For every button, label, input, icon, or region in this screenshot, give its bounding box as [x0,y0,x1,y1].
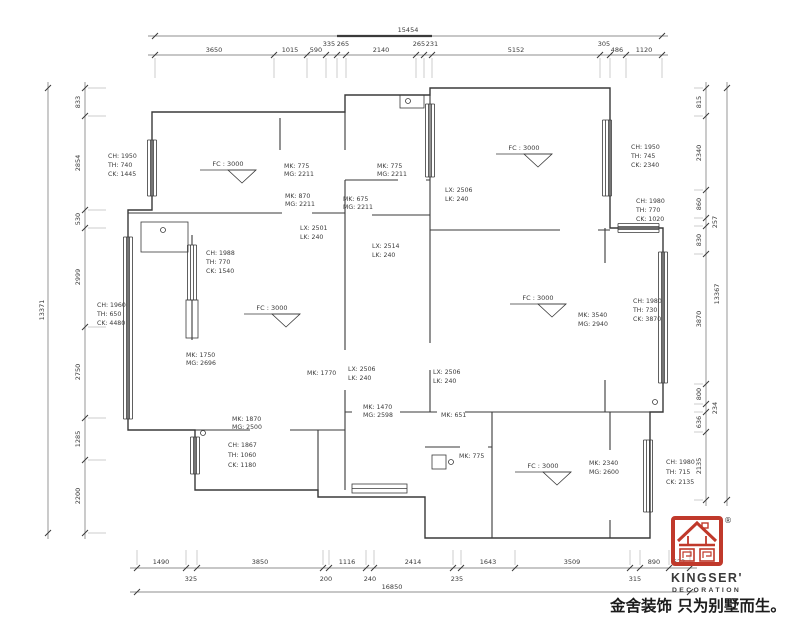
dim-label: 265 [413,40,425,48]
label-line: TH: 715 [665,469,690,476]
window-label-master-west: CH: 1960 TH: 650 CK: 4480 [96,302,126,327]
label-line: CH: 1980 [636,198,665,205]
duct-shaft [400,95,424,108]
dim-label: 636 [695,416,703,428]
label-line: CH: 1988 [206,250,235,257]
window-label-bedroom1-west: CH: 1950 TH: 740 CK: 1445 [107,153,137,178]
fc-label: FC : 3000 [508,144,539,152]
label-line: CK: 1540 [206,268,234,275]
fixture-knob-icon [653,400,658,405]
cabinet [141,222,188,252]
dim-label: 2414 [405,558,422,566]
dim-label: 335 [323,40,335,48]
door-label: MG: 2598 [363,412,393,419]
dim-label: 235 [451,575,463,583]
beam-label: LX: 2501 [300,225,328,232]
dim-label: 1120 [636,46,653,54]
dim-label: 3650 [206,46,223,54]
door-label: MG: 2211 [343,204,373,211]
dim-label: 1490 [153,558,170,566]
dim-label: 2200 [74,488,82,505]
label-line: CH: 1980 [633,298,662,305]
label-line: TH: 745 [630,153,655,160]
label-line: TH: 1060 [227,452,256,459]
label-line: CK: 4480 [97,320,125,327]
dim-label: 2750 [74,364,82,381]
window-label-living-east: CH: 1980 TH: 730 CK: 3870 [632,298,662,323]
beam-annotations: LX: 2501 LK: 240 LX: 2506 LK: 240 LX: 25… [300,187,473,385]
window-label-bedroom3-east: CH: 1980 TH: 715 CK: 2135 [665,459,695,486]
fc-marker-living: FC : 3000 [510,294,566,317]
label-line: CK: 1180 [228,462,256,469]
fc-marker-bedroom2: FC : 3000 [496,144,552,167]
door-label: MG: 2211 [377,171,407,178]
dim-label: 1285 [74,431,82,448]
registered-mark: ® [724,516,732,525]
beam-label: LX: 2506 [445,187,473,194]
label-line: CH: 1980 [666,459,695,466]
fixture-knob-icon [449,460,454,465]
dimension-ticks [45,33,730,595]
dim-label: 833 [74,96,82,108]
floor-plan-sheet: 15454 3650 1015 590 335 265 2140 265 231… [0,0,800,640]
door-label: MG: 2696 [186,360,216,367]
dim-label: 815 [695,96,703,108]
brand-subtitle: DECORATION [672,587,741,594]
dim-label: 231 [426,40,438,48]
dim-label: 486 [611,46,623,54]
window-label-bedroom2-east: CH: 1950 TH: 745 CK: 2340 [630,144,660,169]
brand-name: KINGSER' [671,571,743,585]
dim-label: 2854 [74,155,82,172]
door-label: MG: 2500 [232,424,262,431]
dim-label: 2340 [695,145,703,162]
window-bedroom3-east [644,440,653,512]
dim-label: 3850 [252,558,269,566]
window-label-bath-west: CH: 1867 TH: 1060 CK: 1180 [227,442,257,469]
door-label: MK: 775 [459,453,484,460]
label-line: CK: 1020 [636,216,664,223]
dim-label: 2135 [695,458,703,475]
fixtures [141,95,658,493]
dim-label: 325 [185,575,197,583]
door-label: MG: 2940 [578,321,608,328]
label-line: CK: 3870 [633,316,661,323]
label-line: TH: 740 [107,162,132,169]
door-label: MK: 775 [284,163,309,170]
dim-label: 305 [598,40,610,48]
dim-label: 860 [695,198,703,210]
dim-label: 5152 [508,46,525,54]
fc-label: FC : 3000 [522,294,553,302]
beam-label: LX: 2506 [348,366,376,373]
door-annotations: MK: 775 MG: 2211 MK: 775 MG: 2211 MK: 87… [186,163,619,476]
fc-marker-master: FC : 3000 [244,304,300,327]
dim-label: 1643 [480,558,497,566]
window-label-master-inner: CH: 1988 TH: 770 CK: 1540 [205,250,235,275]
window-label-bedroom2-south: CH: 1980 TH: 770 CK: 1020 [635,198,665,223]
dim-labels-bottom: 1490 3850 1116 2414 1643 3509 890 623 32… [153,558,685,591]
slogan: 金舍装饰 只为别墅而生。 [609,596,786,615]
dim-label: 200 [320,575,332,583]
beam-label: LK: 240 [348,375,371,382]
dim-label: 890 [648,558,660,566]
dim-label: 530 [74,213,82,225]
dim-left-overall: 13371 [38,300,46,321]
beam-label: LX: 2514 [372,243,400,250]
dim-labels-right: 815 2340 860 257 830 3870 800 234 636 21… [695,96,721,474]
door-label: MK: 675 [343,196,368,203]
door-label: MK: 2340 [589,460,618,467]
door-label: MK: 1770 [307,370,336,377]
wash-basin [432,455,446,469]
dim-label: 2999 [74,269,82,286]
floor-plan-drawing: 15454 3650 1015 590 335 265 2140 265 231… [0,0,800,640]
door-label: MK: 870 [285,193,310,200]
label-line: TH: 770 [635,207,660,214]
fixture-knob-icon [161,228,166,233]
dim-label: 2140 [373,46,390,54]
beam-label: LK: 240 [445,196,468,203]
dim-labels-top: 15454 3650 1015 590 335 265 2140 265 231… [206,26,653,54]
fixture-knob-icon [201,431,206,436]
door-label: MK: 1750 [186,352,215,359]
door-label: MK: 1870 [232,416,261,423]
dim-top-overall: 15454 [398,26,419,34]
beam-label: LK: 240 [433,378,456,385]
fc-label: FC : 3000 [256,304,287,312]
dim-label: 800 [695,388,703,400]
door-label: MK: 651 [441,412,466,419]
dim-label: 830 [695,234,703,246]
beam-label: LK: 240 [372,252,395,259]
label-line: CH: 1960 [97,302,126,309]
dim-label: 234 [711,402,719,414]
door-label: MG: 2211 [284,171,314,178]
fixture-knob-icon [406,99,411,104]
door-label: MK: 3540 [578,312,607,319]
dim-label: 257 [711,216,719,228]
label-line: TH: 770 [205,259,230,266]
door-label: MK: 1470 [363,404,392,411]
dim-right-overall: 13367 [713,284,721,305]
ceiling-markers: FC : 3000 FC : 3000 FC : 3000 FC : 3000 … [200,144,571,485]
dim-label: 590 [310,46,322,54]
fc-marker-bedroom3: FC : 3000 [515,462,571,485]
dim-label: 315 [629,575,641,583]
label-line: CK: 2135 [666,479,694,486]
fc-label: FC : 3000 [527,462,558,470]
kingser-logo: ® KINGSER' DECORATION [671,516,743,594]
label-line: CK: 1445 [108,171,136,178]
door-label: MK: 775 [377,163,402,170]
label-line: CH: 1950 [631,144,660,151]
fc-marker-bedroom1: FC : 3000 [200,160,256,183]
dim-label: 3870 [695,311,703,328]
dim-label: 1015 [282,46,299,54]
door-label: MG: 2211 [285,201,315,208]
logo-mark-icon [673,518,721,564]
window-master-inner [188,245,197,300]
label-line: CH: 1867 [228,442,257,449]
dim-bottom-overall: 16850 [382,583,403,591]
dim-label: 240 [364,575,376,583]
label-line: CH: 1950 [108,153,137,160]
dim-label: 1116 [339,558,356,566]
dimension-lines [45,33,730,595]
extension-lines [88,58,703,565]
beam-label: LX: 2506 [433,369,461,376]
beam-label: LK: 240 [300,234,323,241]
fc-label: FC : 3000 [212,160,243,168]
label-line: TH: 730 [632,307,657,314]
dim-label: 265 [337,40,349,48]
dim-labels-left: 833 2854 530 2999 2750 1285 2200 13371 [38,96,82,504]
label-line: TH: 650 [96,311,121,318]
door-label: MG: 2600 [589,469,619,476]
label-line: CK: 2340 [631,162,659,169]
dim-label: 3509 [564,558,581,566]
